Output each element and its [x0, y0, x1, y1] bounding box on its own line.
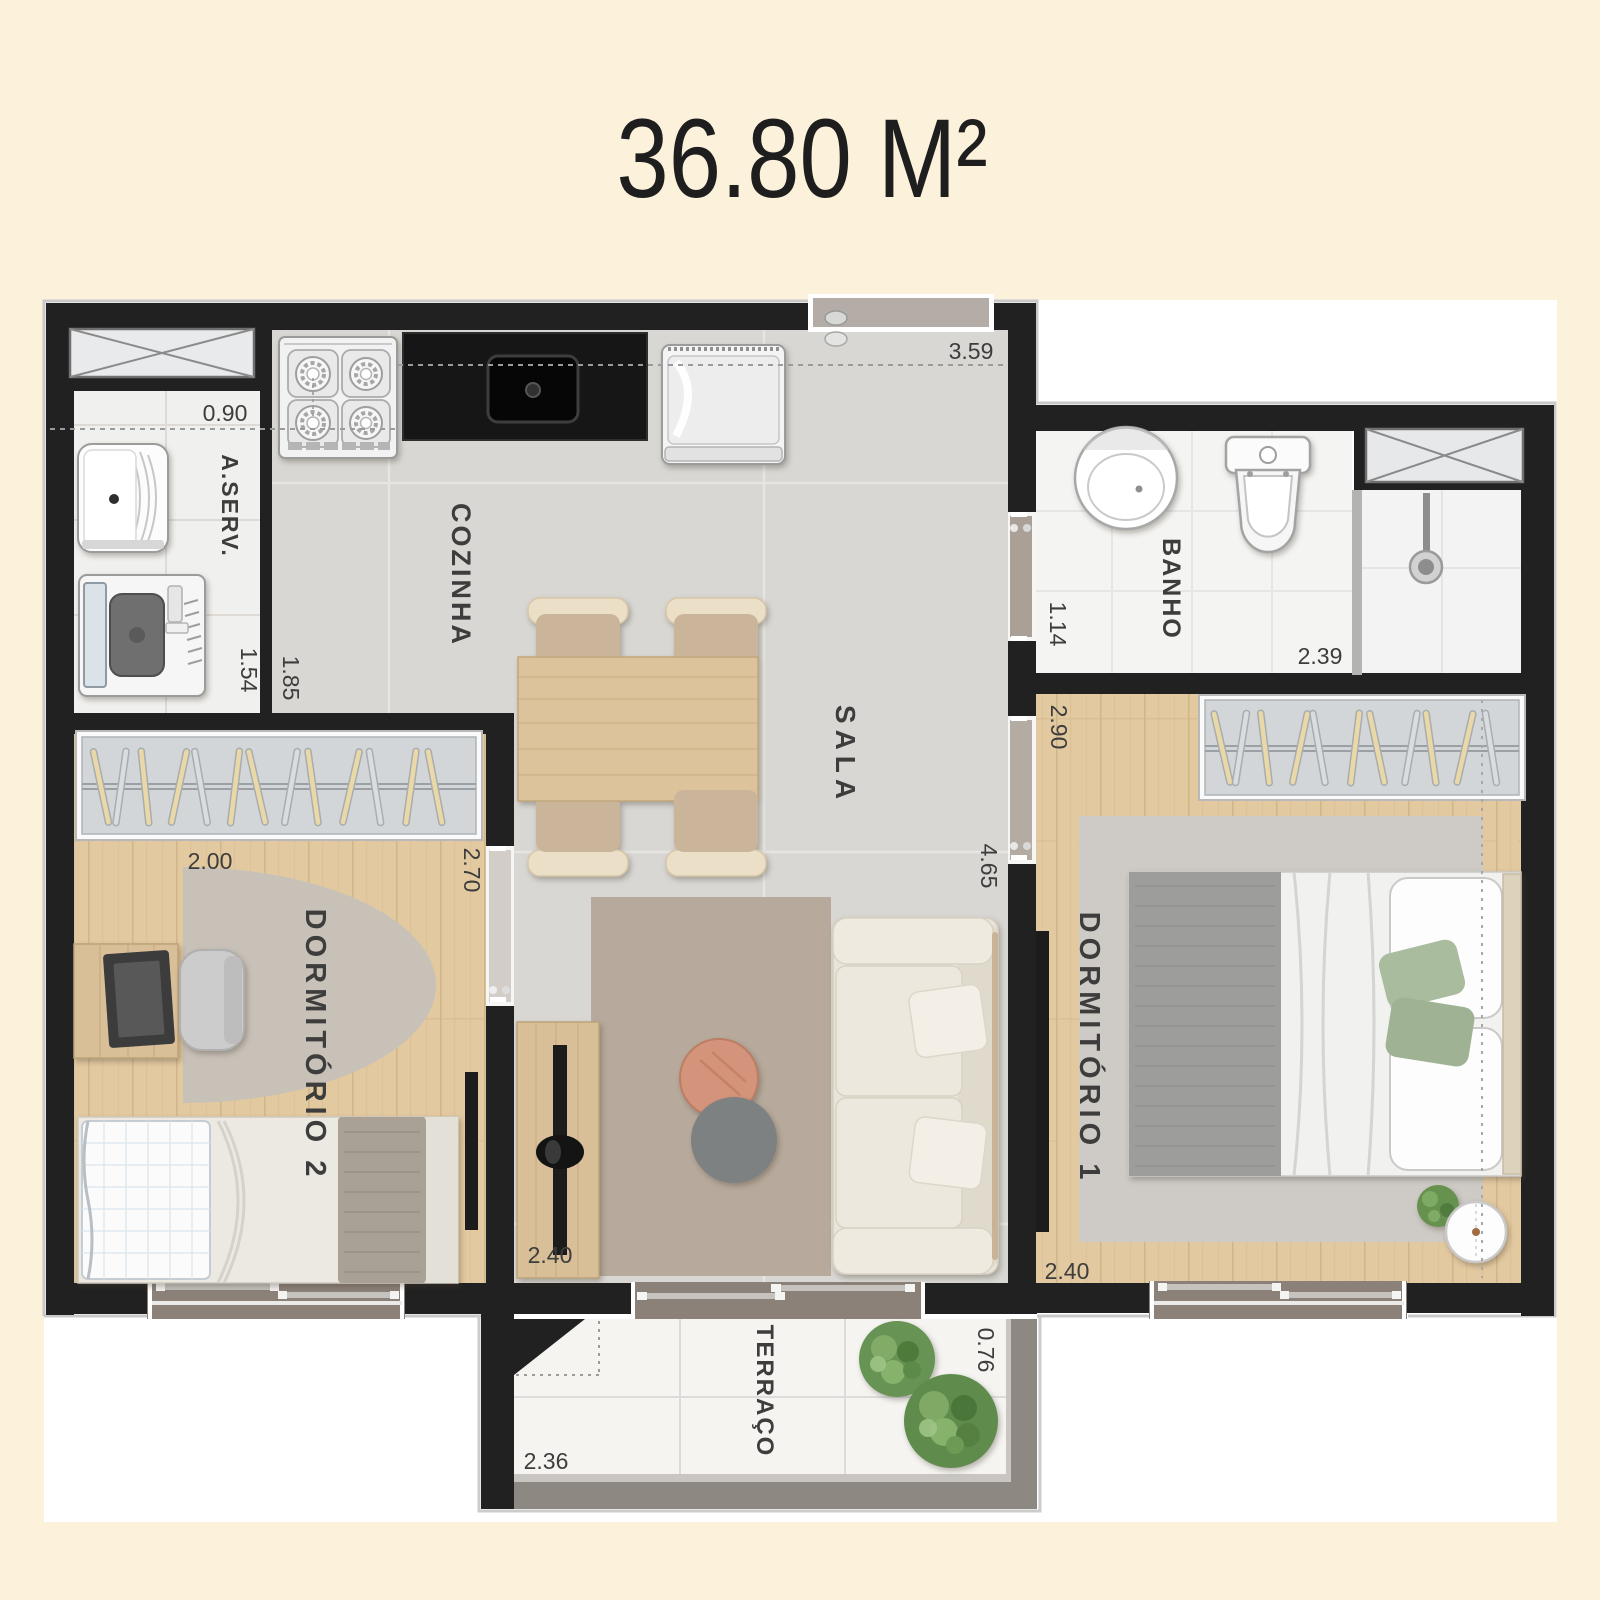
svg-text:1.85: 1.85 — [278, 656, 304, 701]
svg-text:2.36: 2.36 — [524, 1448, 569, 1474]
svg-text:36.80 M²: 36.80 M² — [616, 95, 987, 221]
svg-text:3.59: 3.59 — [949, 338, 994, 364]
svg-text:2.00: 2.00 — [188, 848, 233, 874]
svg-text:2.90: 2.90 — [1046, 705, 1072, 750]
svg-text:0.90: 0.90 — [203, 400, 248, 426]
svg-text:2.70: 2.70 — [459, 848, 485, 893]
svg-text:4.65: 4.65 — [976, 844, 1002, 889]
svg-text:DORMITÓRIO 1: DORMITÓRIO 1 — [1073, 912, 1107, 1185]
svg-text:2.40: 2.40 — [1045, 1258, 1090, 1284]
svg-text:2.39: 2.39 — [1298, 643, 1343, 669]
svg-text:SALA: SALA — [830, 705, 861, 805]
svg-text:2.40: 2.40 — [528, 1242, 573, 1268]
svg-text:1.14: 1.14 — [1045, 602, 1071, 647]
svg-text:TERRAÇO: TERRAÇO — [751, 1325, 778, 1458]
svg-text:A.SERV.: A.SERV. — [217, 454, 243, 558]
svg-text:1.54: 1.54 — [236, 648, 262, 693]
svg-text:BANHO: BANHO — [1157, 538, 1185, 640]
svg-text:DORMITÓRIO 2: DORMITÓRIO 2 — [299, 909, 333, 1182]
svg-text:0.76: 0.76 — [973, 1328, 999, 1373]
svg-text:COZINHA: COZINHA — [446, 503, 476, 647]
